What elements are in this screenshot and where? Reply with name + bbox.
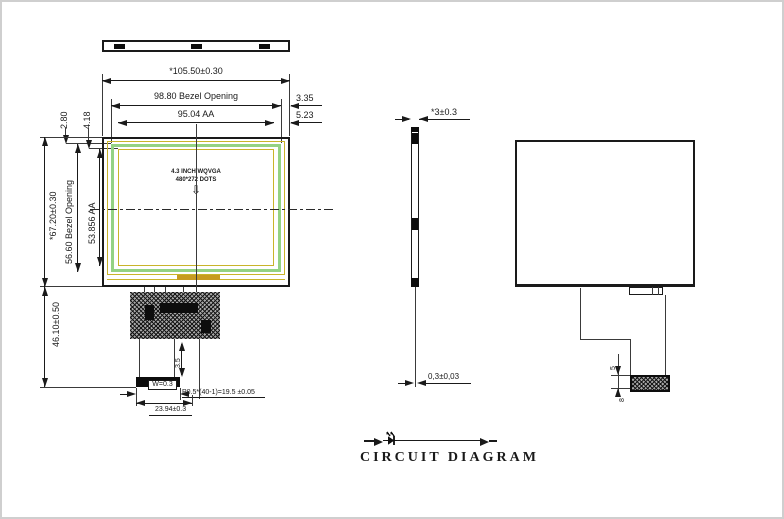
side-pad (412, 133, 418, 144)
dim-line (99, 149, 100, 266)
circuit-wire (489, 440, 497, 442)
gold-tape-bar (177, 275, 220, 280)
dim-line (44, 137, 45, 287)
dim-pin-pitch: P0.5*(40-1)=19.5 ±0.05 (182, 389, 265, 398)
dim-aa-height: 53.856 AA (87, 164, 98, 244)
dim-bezel-height: 56.60 Bezel Opening (64, 146, 75, 264)
rear-notch-line (652, 287, 653, 295)
side-tip (411, 278, 419, 287)
arrowhead (127, 391, 136, 397)
ext-line (611, 375, 630, 376)
circuit-terminal-icon (374, 438, 383, 446)
rear-fpc-edge (630, 339, 631, 375)
arrowhead (281, 78, 290, 84)
circuit-wire (364, 440, 374, 442)
ext-line (192, 395, 193, 406)
side-profile (411, 127, 419, 287)
dim-aa-width: 95.04 AA (146, 109, 246, 120)
arrowhead (405, 380, 414, 386)
dim-line (291, 105, 322, 106)
horizontal-centerline (90, 209, 334, 210)
dim-top-gap-bezel: 2.80 (59, 99, 70, 129)
dim-top-gap-aa: 4.18 (82, 99, 93, 129)
top-edge-pad (259, 44, 270, 49)
arrowhead (42, 287, 48, 296)
arrowhead (118, 120, 127, 126)
arrowhead (75, 263, 81, 272)
dim-contact-width: W=0.3 (148, 380, 177, 390)
dim-thickness: *3±0.3 (431, 107, 457, 118)
circuit-terminal-icon (480, 438, 489, 446)
arrowhead (75, 144, 81, 153)
dim-line (426, 383, 471, 384)
dim-overall-width: *105.50±0.30 (136, 66, 256, 77)
fpc-component (201, 320, 211, 333)
arrowhead (111, 103, 120, 109)
arrowhead (102, 78, 111, 84)
ext-line (40, 137, 102, 138)
side-pad (412, 218, 418, 230)
rear-connector (630, 375, 670, 392)
rear-notch-line (658, 287, 659, 295)
circuit-wire (383, 440, 480, 441)
arrowhead (42, 378, 48, 387)
fpc-component (145, 305, 154, 320)
dim-connector: 8 (619, 390, 627, 402)
top-edge-pad (191, 44, 202, 49)
dim-tail-len: 3.5 (175, 348, 183, 368)
circuit-diagram-title: CIRCUIT DIAGRAM (360, 452, 500, 463)
dim-fpc-drop: 46.10±0.50 (51, 275, 62, 347)
arrowhead (272, 103, 281, 109)
ext-line (40, 387, 136, 388)
vertical-centerline (196, 124, 197, 292)
dim-tail-width: 23.94±0.3 (149, 406, 192, 416)
dim-line (419, 119, 470, 120)
fpc-tail-edge (139, 339, 140, 377)
dim-line (44, 287, 45, 387)
engineering-drawing: *105.50±0.30 98.80 Bezel Opening 95.04 A… (0, 0, 784, 519)
rear-outline (515, 140, 695, 287)
dim-edge-gap-aa: 5.23 (296, 110, 314, 121)
arrowhead (417, 380, 426, 386)
arrowhead (265, 120, 274, 126)
arrowhead (42, 137, 48, 146)
dim-line (77, 144, 78, 272)
rear-fpc-edge (580, 288, 581, 339)
dim-fold-gap: 5 (610, 356, 618, 370)
side-fpc-line (415, 287, 416, 387)
ext-line (40, 286, 102, 287)
arrowhead (402, 116, 411, 122)
fpc-component (160, 303, 198, 313)
dim-line (102, 80, 290, 81)
arrowhead (42, 278, 48, 287)
dim-line (291, 122, 322, 123)
dim-line (111, 105, 281, 106)
top-edge-pad (114, 44, 125, 49)
arrowhead (136, 400, 145, 406)
dim-overall-height: *67.20±0.30 (48, 154, 59, 240)
rear-fpc-edge (665, 295, 666, 375)
dim-bezel-width: 98.80 Bezel Opening (126, 91, 266, 102)
arrowhead (179, 368, 185, 377)
dim-edge-gap-bezel: 3.35 (296, 93, 314, 104)
led-icon (386, 430, 397, 447)
dim-line (118, 122, 274, 123)
side-cap (411, 127, 419, 132)
dim-fpc-thickness: 0,3±0,03 (428, 373, 459, 381)
rear-fpc-edge (580, 339, 631, 340)
